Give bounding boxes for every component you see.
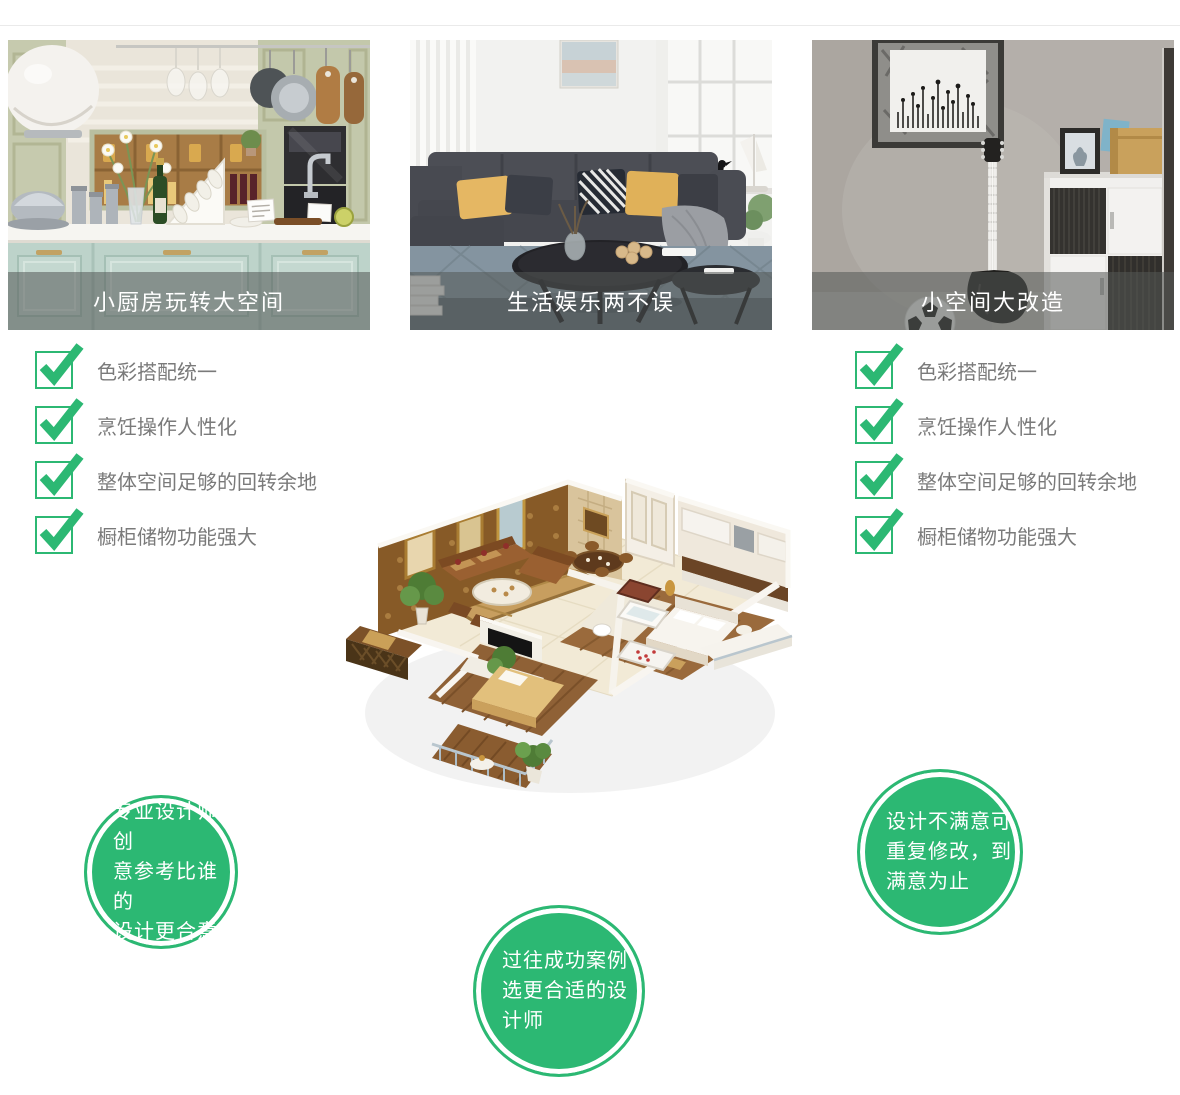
checklist-label: 烹饪操作人性化 — [97, 411, 237, 440]
check-icon — [855, 406, 893, 444]
check-icon — [855, 516, 893, 554]
caption-text: 小空间大改造 — [921, 285, 1065, 317]
checklist-label: 色彩搭配统一 — [97, 356, 217, 385]
checklist-item: 整体空间足够的回转余地 — [35, 458, 317, 502]
caption-text: 生活娱乐两不误 — [507, 285, 675, 317]
floorplan-image — [330, 468, 810, 828]
feature-card-kitchen[interactable]: 小厨房玩转大空间 — [8, 40, 370, 330]
checklist-label: 整体空间足够的回转余地 — [917, 466, 1137, 495]
checklist-item: 橱柜储物功能强大 — [855, 513, 1077, 557]
badge-text: 过往成功案例 选更合适的设 计师 — [476, 946, 628, 1036]
section-divider — [0, 25, 1180, 26]
checklist-item: 色彩搭配统一 — [35, 348, 217, 392]
check-icon — [35, 406, 73, 444]
badge-designer-creativity: 专业设计师创 意参考比谁的 设计更合意 — [84, 795, 238, 949]
checklist-item: 烹饪操作人性化 — [35, 403, 237, 447]
checklist-item: 橱柜储物功能强大 — [35, 513, 257, 557]
check-icon — [35, 461, 73, 499]
card-caption: 生活娱乐两不误 — [410, 272, 772, 330]
checklist-label: 整体空间足够的回转余地 — [97, 466, 317, 495]
checklist-item: 整体空间足够的回转余地 — [855, 458, 1137, 502]
promo-section: 小厨房玩转大空间 — [0, 0, 1180, 1095]
feature-card-small-space[interactable]: 小空间大改造 — [812, 40, 1174, 330]
caption-text: 小厨房玩转大空间 — [93, 285, 285, 317]
checklist-label: 橱柜储物功能强大 — [917, 521, 1077, 550]
badge-past-cases: 过往成功案例 选更合适的设 计师 — [473, 905, 645, 1077]
check-icon — [855, 351, 893, 389]
badge-text: 专业设计师创 意参考比谁的 设计更合意 — [87, 797, 235, 947]
checklist-label: 烹饪操作人性化 — [917, 411, 1057, 440]
checklist-label: 橱柜储物功能强大 — [97, 521, 257, 550]
card-caption: 小空间大改造 — [812, 272, 1174, 330]
check-icon — [35, 351, 73, 389]
card-caption: 小厨房玩转大空间 — [8, 272, 370, 330]
checklist-label: 色彩搭配统一 — [917, 356, 1037, 385]
checklist-item: 色彩搭配统一 — [855, 348, 1037, 392]
feature-card-living-room[interactable]: 生活娱乐两不误 — [410, 40, 772, 330]
check-icon — [855, 461, 893, 499]
checklist-item: 烹饪操作人性化 — [855, 403, 1057, 447]
badge-revise-until-satisfied: 设计不满意可 重复修改，到 满意为止 — [857, 769, 1023, 935]
badge-text: 设计不满意可 重复修改，到 满意为止 — [860, 807, 1012, 897]
check-icon — [35, 516, 73, 554]
